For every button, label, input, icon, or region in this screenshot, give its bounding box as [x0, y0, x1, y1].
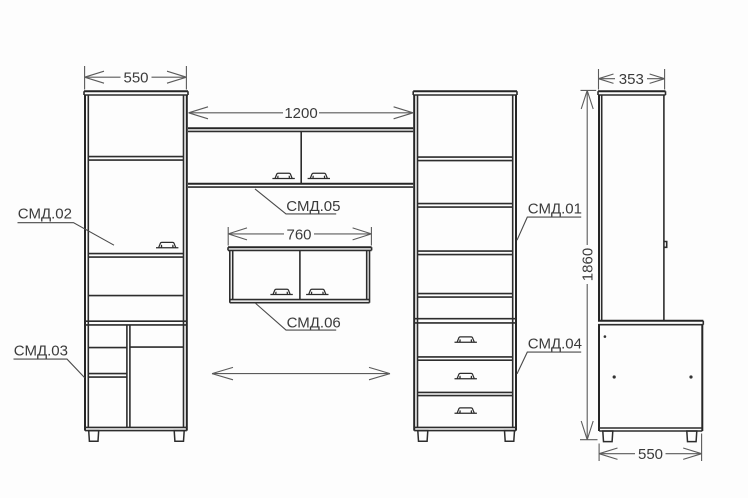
svg-text:550: 550 [638, 446, 663, 463]
svg-text:СМД.03: СМД.03 [14, 343, 68, 360]
svg-text:СМД.06: СМД.06 [287, 315, 341, 332]
svg-text:550: 550 [123, 70, 148, 87]
svg-text:СМД.04: СМД.04 [528, 336, 582, 353]
svg-text:СМД.01: СМД.01 [528, 201, 582, 218]
svg-text:1200: 1200 [284, 105, 317, 122]
svg-text:СМД.05: СМД.05 [286, 198, 340, 215]
svg-text:СМД.02: СМД.02 [18, 206, 72, 223]
svg-text:760: 760 [286, 226, 311, 243]
svg-text:353: 353 [619, 71, 644, 88]
svg-text:1860: 1860 [580, 248, 597, 281]
